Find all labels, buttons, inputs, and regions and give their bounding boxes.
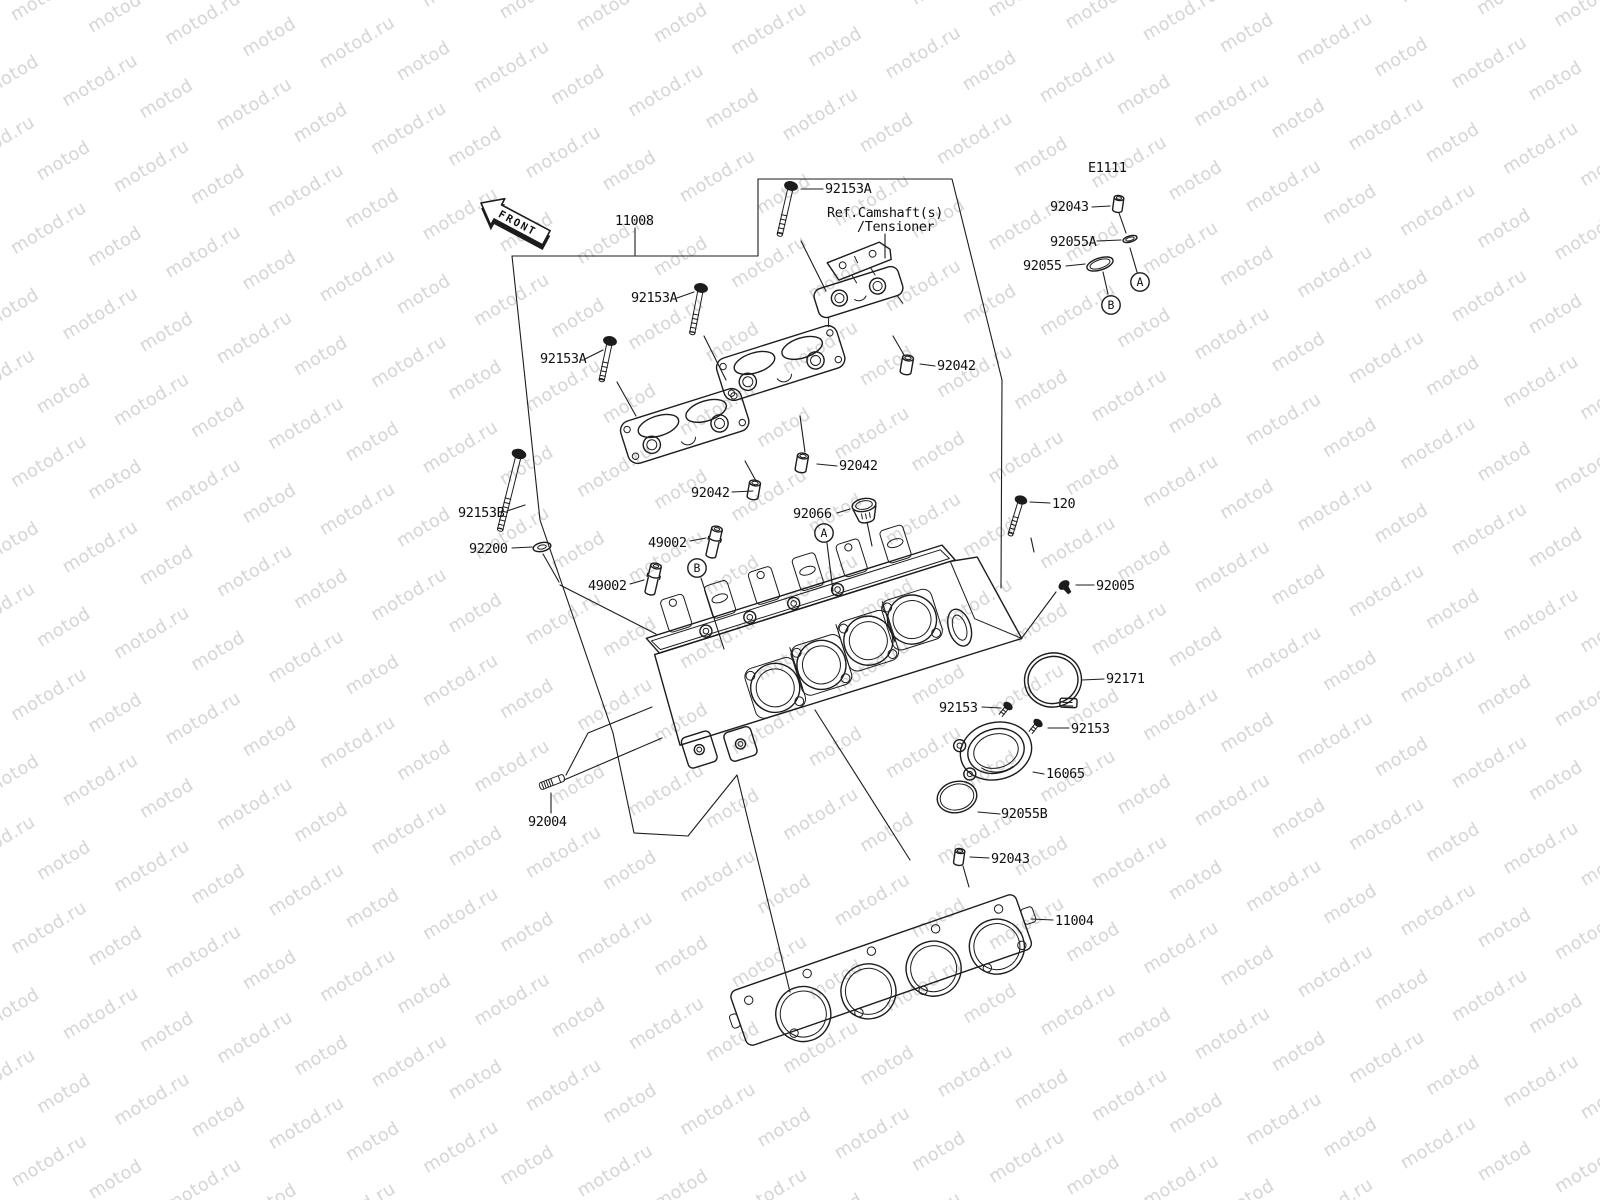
- callout-49002-1: 49002: [648, 535, 687, 551]
- parts-diagram-page: motod.ru motod.ru FRONT E1111 A B: [0, 0, 1600, 1200]
- callout-92055A: 92055A: [1050, 234, 1097, 250]
- callout-92055: 92055: [1023, 258, 1062, 274]
- callout-120: 120: [1052, 496, 1075, 512]
- callout-92153B: 92153B: [458, 505, 505, 521]
- callout-92043-top: 92043: [1050, 199, 1089, 215]
- marker-b-letter: B: [1108, 298, 1115, 312]
- callout-92043-bottom: 92043: [991, 851, 1030, 867]
- callout-11008: 11008: [615, 213, 654, 229]
- callout-92066: 92066: [793, 506, 832, 522]
- ref-camshaft-note-line2: /Tensioner: [857, 219, 935, 235]
- callout-92153A-1: 92153A: [825, 181, 872, 197]
- exploded-view-diagram: motod.ru motod.ru FRONT E1111 A B: [0, 0, 1600, 1200]
- callout-16065: 16065: [1046, 766, 1085, 782]
- callout-92042-1: 92042: [937, 358, 976, 374]
- watermark-layer: [0, 0, 1600, 1200]
- callout-49002-2: 49002: [588, 578, 627, 594]
- callout-92153-2: 92153: [1071, 721, 1110, 737]
- callout-92004: 92004: [528, 814, 567, 830]
- callout-92153A-3: 92153A: [540, 351, 587, 367]
- marker-a-letter: A: [1137, 275, 1144, 289]
- diagram-code: E1111: [1088, 160, 1127, 176]
- callout-92171: 92171: [1106, 671, 1145, 687]
- callout-92153-1: 92153: [939, 700, 978, 716]
- callout-92200: 92200: [469, 541, 508, 557]
- marker-a-letter: A: [821, 526, 828, 540]
- callout-92055B: 92055B: [1001, 806, 1048, 822]
- marker-b-letter: B: [694, 561, 701, 575]
- callout-92042-3: 92042: [691, 485, 730, 501]
- callout-11004: 11004: [1055, 913, 1094, 929]
- callout-92005: 92005: [1096, 578, 1135, 594]
- callout-92042-2: 92042: [839, 458, 878, 474]
- callout-92153A-2: 92153A: [631, 290, 678, 306]
